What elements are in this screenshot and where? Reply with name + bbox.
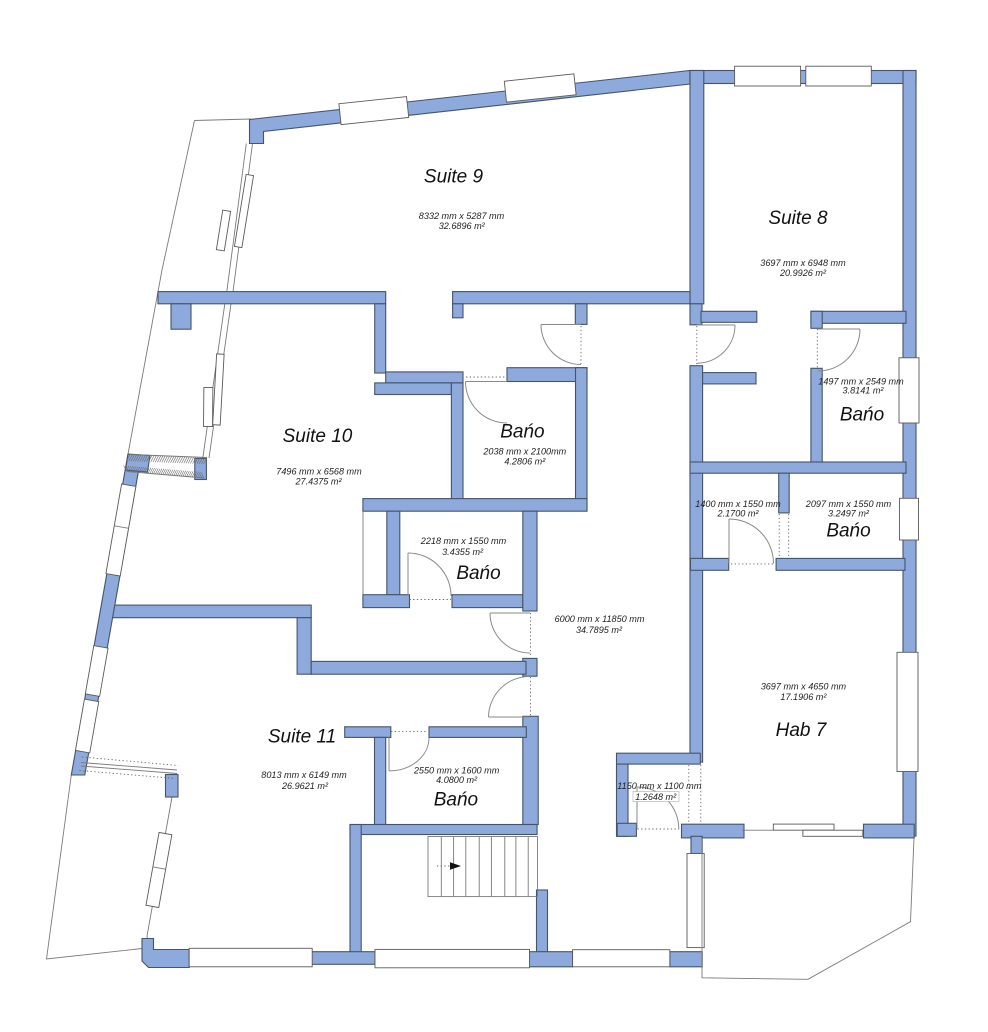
svg-text:Bańo: Bańo: [826, 520, 870, 541]
svg-text:Suite 11: Suite 11: [268, 727, 336, 748]
svg-text:1150 mm x 1100 mm: 1150 mm x 1100 mm: [617, 781, 701, 791]
svg-text:Bańo: Bańo: [434, 790, 478, 811]
svg-text:34.7895 m²: 34.7895 m²: [576, 625, 623, 635]
svg-text:Suite 8: Suite 8: [768, 208, 828, 229]
svg-text:3.8141 m²: 3.8141 m²: [843, 386, 885, 396]
svg-text:Suite 9: Suite 9: [424, 167, 484, 188]
svg-text:2.1700 m²: 2.1700 m²: [717, 508, 760, 518]
svg-text:4.0800 m²: 4.0800 m²: [436, 775, 478, 785]
svg-text:4.2806 m²: 4.2806 m²: [504, 456, 546, 466]
svg-text:Bańo: Bańo: [840, 405, 884, 426]
svg-text:8013 mm x 6149 mm: 8013 mm x 6149 mm: [261, 770, 347, 780]
svg-text:2218 mm x 1550 mm: 2218 mm x 1550 mm: [420, 536, 507, 546]
svg-text:6000 mm x 11850 mm: 6000 mm x 11850 mm: [555, 614, 645, 624]
svg-text:Bańo: Bańo: [500, 422, 544, 443]
svg-text:Hab 7: Hab 7: [776, 720, 828, 741]
svg-text:7496 mm x 6568 mm: 7496 mm x 6568 mm: [276, 467, 362, 477]
svg-text:20.9926 m²: 20.9926 m²: [779, 268, 827, 278]
svg-text:26.9621 m²: 26.9621 m²: [281, 781, 329, 791]
svg-text:Bańo: Bańo: [456, 563, 500, 584]
svg-text:3697 mm x 4650 mm: 3697 mm x 4650 mm: [761, 682, 847, 692]
svg-text:3.4355 m²: 3.4355 m²: [442, 547, 484, 557]
svg-text:2038 mm x 2100mm: 2038 mm x 2100mm: [482, 447, 566, 457]
svg-text:17.1906 m²: 17.1906 m²: [780, 692, 827, 702]
svg-text:3697 mm x 6948 mm: 3697 mm x 6948 mm: [760, 258, 846, 268]
svg-text:8332 mm x 5287 mm: 8332 mm x 5287 mm: [419, 211, 505, 221]
svg-text:27.4375 m²: 27.4375 m²: [294, 477, 342, 487]
svg-text:Suite 10: Suite 10: [283, 426, 353, 447]
svg-text:32.6896 m²: 32.6896 m²: [439, 221, 486, 231]
svg-text:3.2497 m²: 3.2497 m²: [828, 509, 870, 519]
svg-text:1.2648 m²: 1.2648 m²: [635, 792, 677, 802]
